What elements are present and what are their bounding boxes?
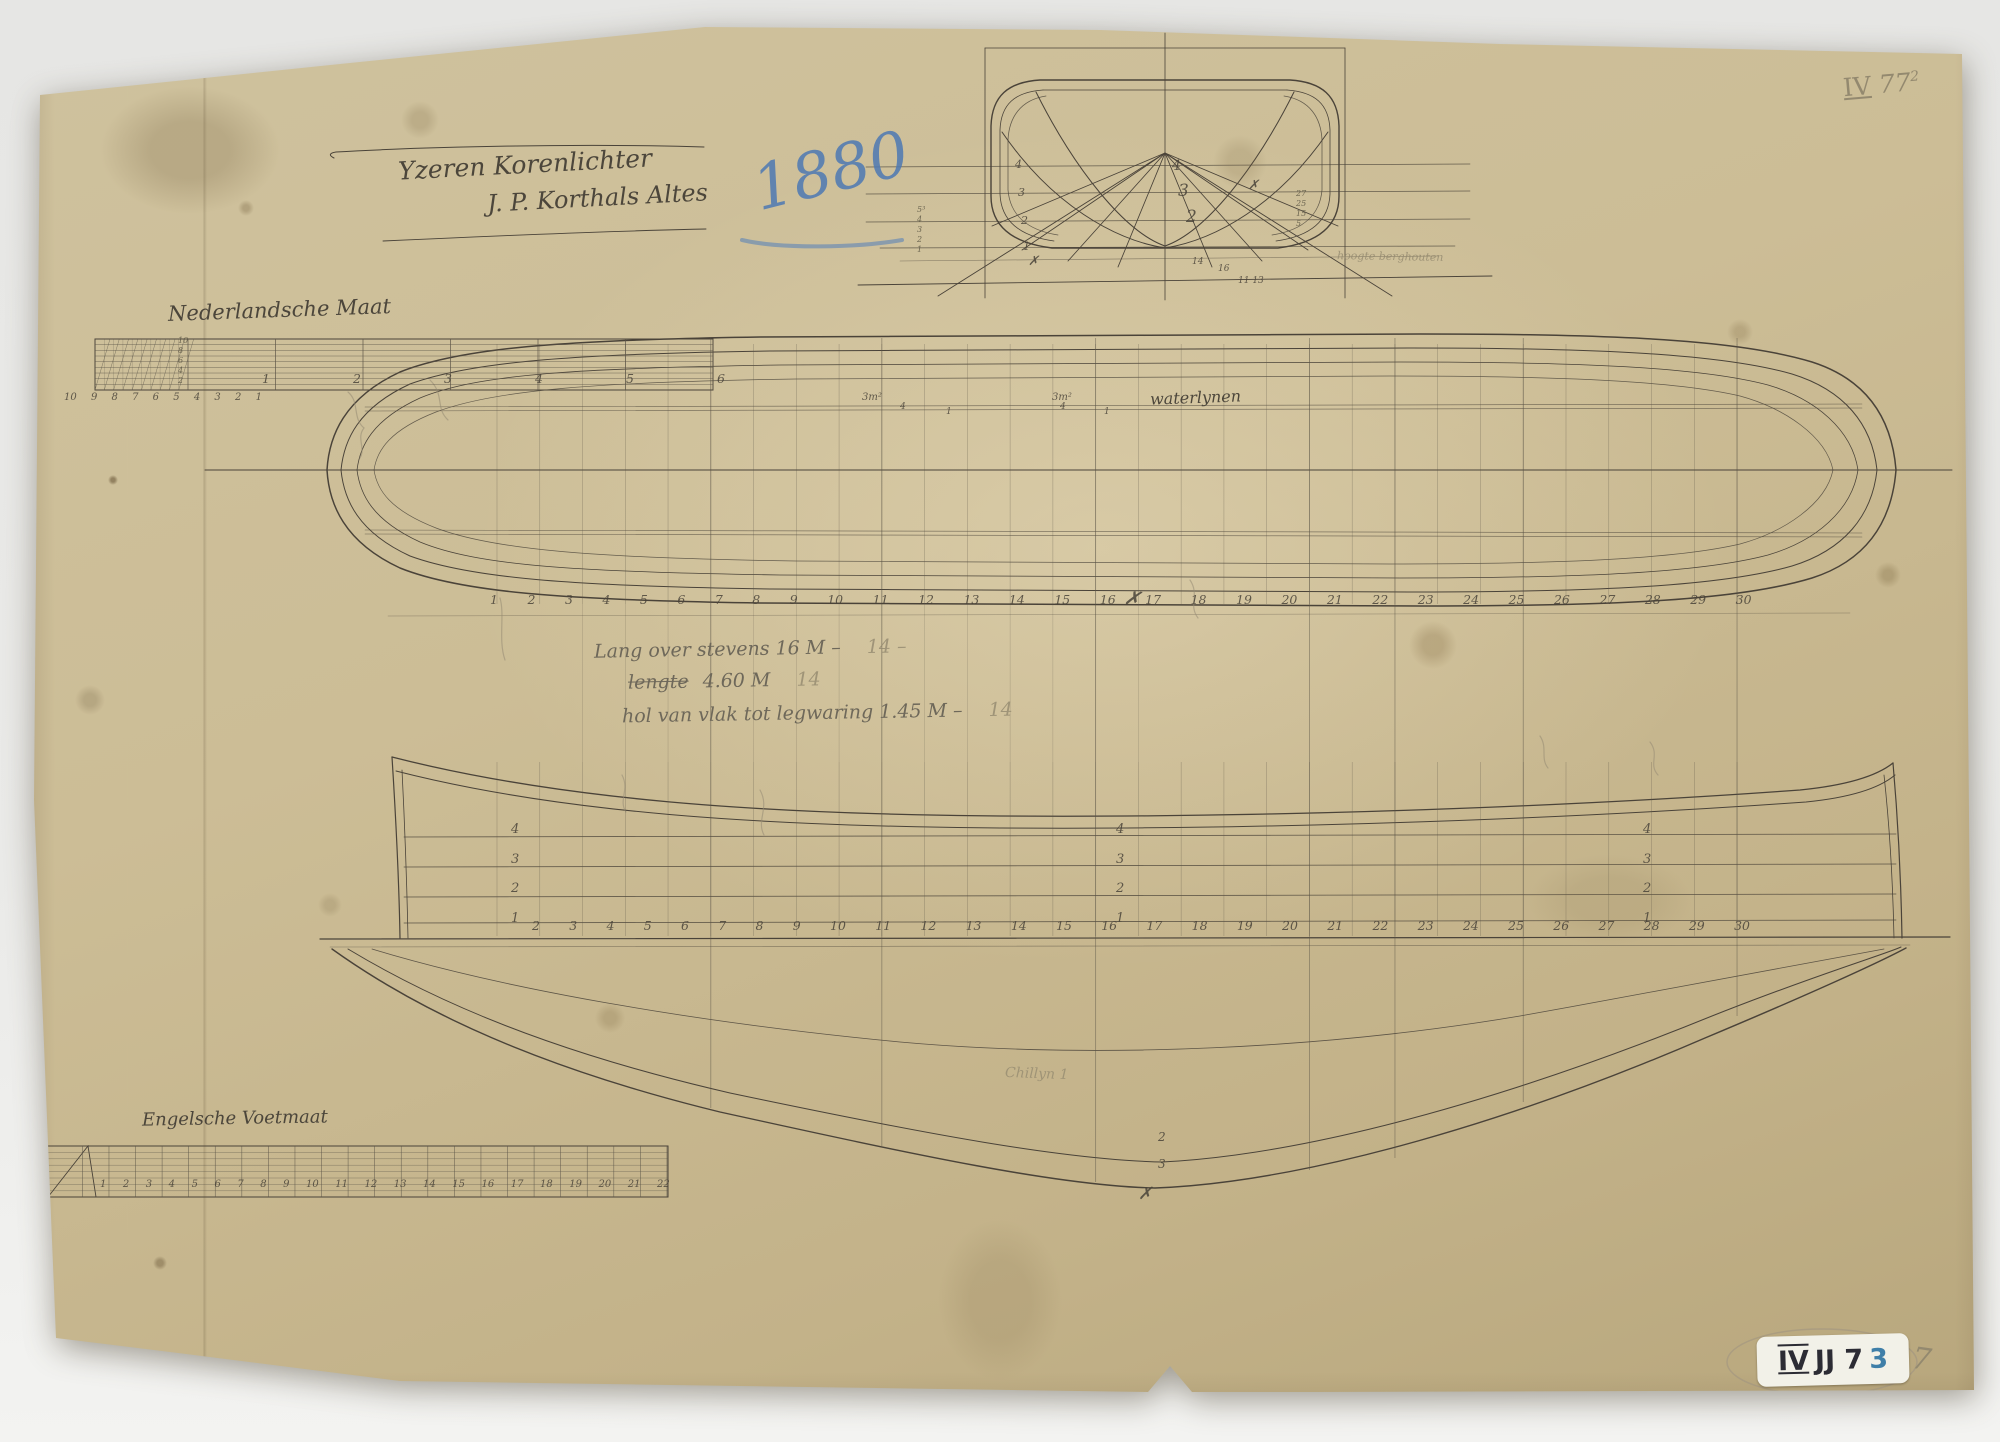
photographed-archival-drawing: Yzeren Korenlichter J. P. Korthals Altes… [0,0,2000,1442]
scale-bar-frames [45,339,713,1197]
spec-line-2: lengte4.60 M14 [628,668,821,693]
chine-line-label: Chillyn 1 [1005,1065,1069,1083]
paper-sheet-wrap: Yzeren Korenlichter J. P. Korthals Altes… [0,0,2000,1442]
spec-line-1-pencil: 14 – [867,635,907,658]
generated-grid-lines [45,338,1737,1197]
dutch-scale-side-numbers: 108642 [178,336,188,386]
archive-mark-sup: 2 [1909,68,1919,85]
pencil-scribbles [348,380,1658,835]
archive-mark-number: 77 [1878,67,1912,99]
english-scale-numbers: 12345678910111213141516171819202122 [100,1179,670,1190]
spec-line-3-pencil: 14 [988,699,1013,721]
english-scale-label: Engelsche Voetmaat [142,1106,328,1130]
faint-note: hoogte berghouten [1337,249,1444,264]
sheer-station-numbers: 2345678910111213141516171819202122232425… [532,918,1750,933]
sticker-code: JJ 7 [1815,1344,1864,1376]
spec-line-1-text: Lang over stevens 16 M – [594,636,841,662]
dutch-scale-minor-numbers: 10987654321 [64,392,262,403]
sticker-roman: IV [1778,1345,1810,1377]
sheer-waterline-labels-left: 4321 [511,822,519,940]
spec-line-2-struck: lengte [628,671,689,694]
waterlines-label: waterlynen [1150,386,1242,408]
spec-line-2-text: 4.60 M [702,669,770,692]
sticker-accent-digit: 3 [1869,1343,1889,1374]
sheer-plan [320,757,1950,1188]
body-plan-right-numbers: 2725155 [1296,189,1306,229]
archive-mark-roman: IV [1842,71,1872,102]
english-scale-inch-numbers: 24681012 [32,1146,42,1206]
body-plan-left-numbers: 5³4321 [917,205,925,255]
aged-paper-sheet: Yzeren Korenlichter J. P. Korthals Altes… [0,0,2000,1442]
ship-lines-drawing [0,0,2000,1442]
archive-sticker: IV JJ 73 [1756,1333,1909,1387]
dutch-scale-major-numbers: 123456 [262,371,725,386]
spec-line-2-pencil: 14 [796,668,821,690]
half-breadth-station-numbers: 1234567891011121314151617181920212223242… [490,592,1752,607]
